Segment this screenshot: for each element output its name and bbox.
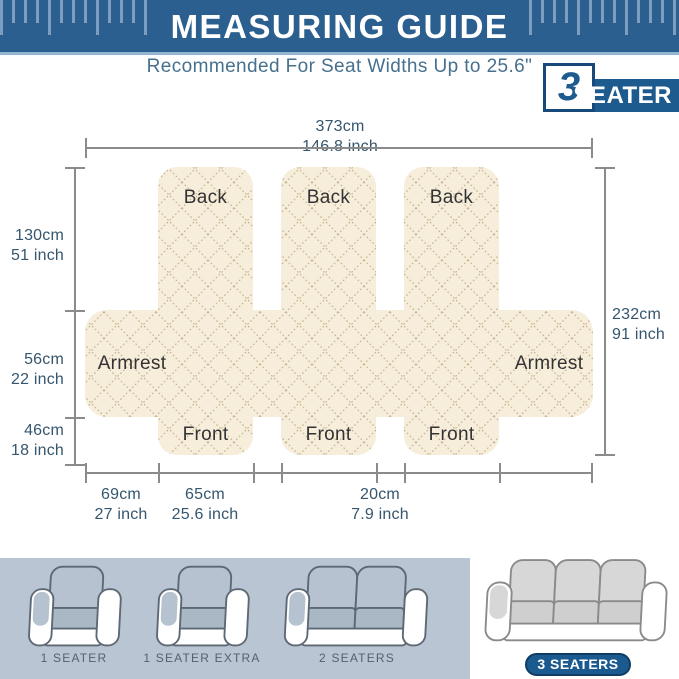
measurement-top-cm: 373cm [240, 117, 440, 137]
dim-tick [404, 463, 406, 483]
measurement-left-front: 46cm 18 inch [0, 421, 64, 461]
header-banner: MEASURING GUIDE [0, 0, 679, 52]
dim-tick [85, 463, 87, 483]
dim-tick [65, 167, 85, 169]
front-label-2: Front [281, 424, 376, 446]
measurement-cm: 232cm [612, 305, 678, 325]
measurement-inch: 25.6 inch [145, 505, 265, 525]
front-label-1: Front [158, 424, 253, 446]
front-label-3: Front [404, 424, 499, 446]
measurement-cm: 130cm [0, 226, 64, 246]
measurement-inch: 51 inch [0, 246, 64, 266]
variant-label: 2 SEATERS [319, 651, 395, 665]
dim-tick [85, 138, 87, 158]
dim-tick [376, 463, 378, 483]
dim-tick [65, 310, 85, 312]
dim-line-left [74, 168, 76, 465]
seater-badge-label: SEATER [573, 84, 672, 108]
armchair-extra-icon [148, 563, 256, 651]
measurement-inch: 7.9 inch [320, 505, 440, 525]
dim-tick [499, 463, 501, 483]
measuring-guide-page: MEASURING GUIDE Recommended For Seat Wid… [0, 0, 679, 679]
dim-line-right [604, 168, 606, 456]
armrest-label-left: Armrest [77, 353, 187, 375]
back-label-3: Back [404, 187, 499, 209]
measurement-right-total: 232cm 91 inch [612, 305, 678, 345]
measurement-top: 373cm 146.8 inch [240, 117, 440, 157]
measurement-inch: 91 inch [612, 325, 678, 345]
measurement-cm: 46cm [0, 421, 64, 441]
header-separator [0, 52, 679, 55]
sofa-3-seater-icon [480, 553, 676, 653]
back-label-2: Back [281, 187, 376, 209]
dim-tick [65, 464, 85, 466]
measurement-inch: 18 inch [0, 441, 64, 461]
measurement-cm: 56cm [0, 350, 64, 370]
variant-label: 1 SEATER EXTRA [143, 651, 260, 665]
variant-3-seaters: 3 SEATERS [478, 553, 678, 676]
measurement-bottom-gap: 20cm 7.9 inch [320, 485, 440, 525]
dim-tick [595, 167, 615, 169]
dim-line-top [85, 147, 593, 149]
measurement-bottom-seat: 65cm 25.6 inch [145, 485, 265, 525]
measurement-cm: 65cm [145, 485, 265, 505]
seat-column-3 [404, 167, 499, 455]
seat-column-2 [281, 167, 376, 455]
dim-tick [65, 417, 85, 419]
dim-line-bottom [85, 472, 593, 474]
variant-1-seater-extra: 1 SEATER EXTRA [140, 563, 264, 665]
armchair-icon [20, 563, 128, 651]
page-title: MEASURING GUIDE [0, 0, 679, 52]
back-label-1: Back [158, 187, 253, 209]
dim-tick [591, 463, 593, 483]
armrest-label-right: Armrest [494, 353, 604, 375]
variant-2-seaters: 2 SEATERS [272, 563, 442, 665]
dim-tick [253, 463, 255, 483]
dim-tick [158, 463, 160, 483]
measurement-cm: 20cm [320, 485, 440, 505]
loveseat-icon [277, 563, 437, 651]
dim-tick [281, 463, 283, 483]
variant-label: 1 SEATER [41, 651, 108, 665]
variant-label-highlighted: 3 SEATERS [525, 653, 630, 676]
seater-badge: 3 SEATER [543, 63, 679, 112]
dim-tick [591, 138, 593, 158]
measurement-left-armrest: 56cm 22 inch [0, 350, 64, 390]
seat-column-1 [158, 167, 253, 455]
measurement-inch: 22 inch [0, 370, 64, 390]
measurement-left-back: 130cm 51 inch [0, 226, 64, 266]
dim-tick [595, 454, 615, 456]
variant-1-seater: 1 SEATER [12, 563, 136, 665]
